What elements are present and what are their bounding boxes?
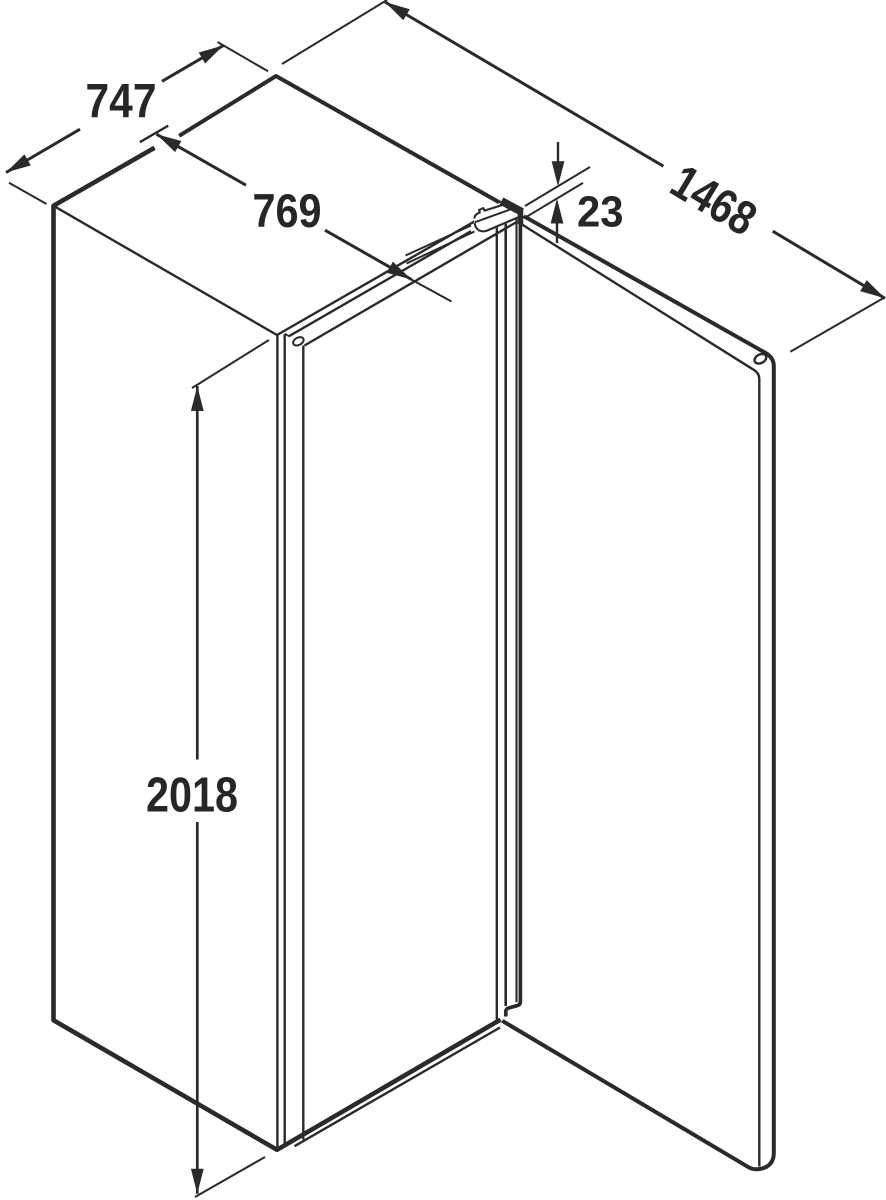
- svg-text:769: 769: [253, 184, 322, 237]
- svg-text:23: 23: [577, 188, 624, 237]
- svg-text:2018: 2018: [146, 768, 238, 823]
- svg-text:747: 747: [86, 76, 157, 129]
